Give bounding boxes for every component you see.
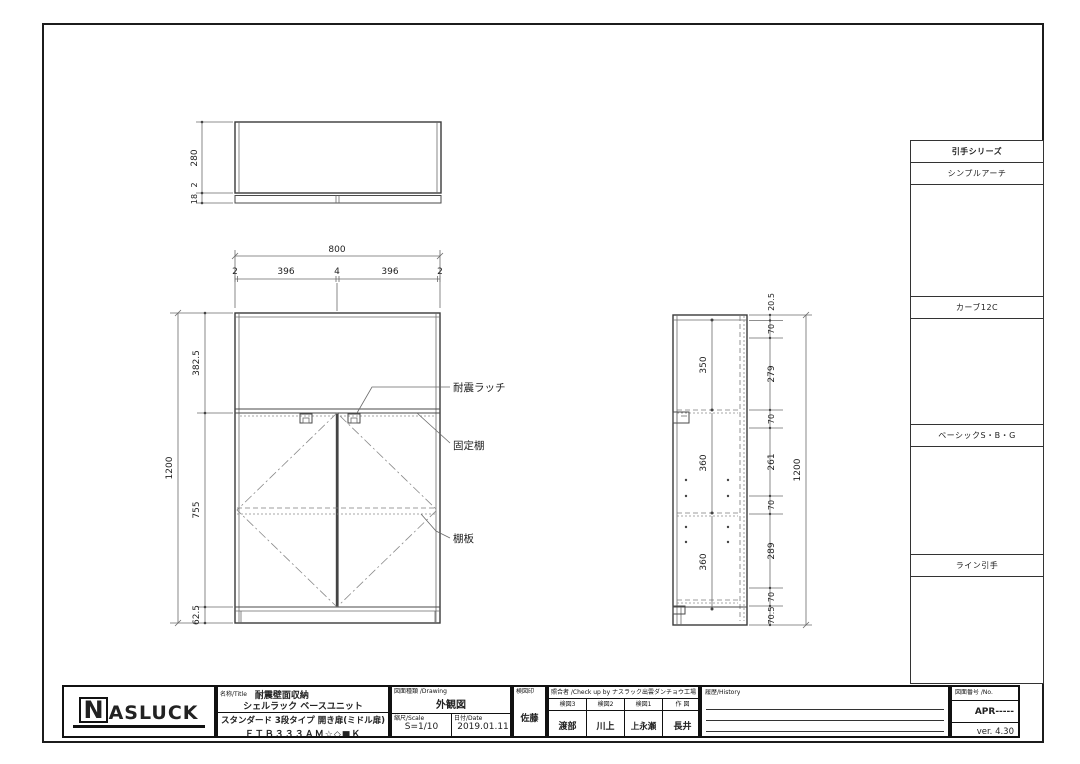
top-view: 280 2 18 bbox=[190, 121, 441, 205]
dim-side-360a: 360 bbox=[699, 454, 709, 471]
stamp-label: 検図印 bbox=[516, 688, 534, 695]
history-label: 履歴/History bbox=[705, 689, 740, 696]
dim-side-705: 70.5 bbox=[767, 607, 776, 625]
dim-front-800: 800 bbox=[328, 245, 345, 255]
check2-label: 検図2 bbox=[587, 699, 625, 711]
product-name-2: シェルラック ベースユニット bbox=[218, 699, 388, 712]
stamp-name: 佐藤 bbox=[514, 695, 545, 738]
date-value: 2019.01.11 bbox=[452, 722, 512, 732]
handle-section-title-line: ライン引手 bbox=[910, 554, 1044, 577]
dim-side-205: 20.5 bbox=[767, 293, 776, 311]
date-label: 日付/Date bbox=[454, 715, 512, 722]
dim-side-279: 279 bbox=[767, 365, 777, 382]
drawing-type-value: 外観図 bbox=[392, 694, 510, 713]
check1-name: 上永瀬 bbox=[625, 711, 663, 738]
handle-section-body-line bbox=[910, 576, 1044, 684]
version-value: ver. 4.30 bbox=[952, 722, 1018, 738]
dim-side-1200: 1200 bbox=[793, 458, 803, 481]
logo-letter-n: N bbox=[79, 697, 107, 723]
handle-section-title-basic-sbg: ベーシックS・B・G bbox=[910, 424, 1044, 447]
label-fixed-shelf: 固定棚 bbox=[453, 439, 485, 452]
scale-value: S=1/10 bbox=[392, 722, 451, 732]
dim-side-289: 289 bbox=[767, 542, 777, 559]
handle-section-title-simple-arch: シンプルアーチ bbox=[910, 162, 1044, 185]
dim-front-382: 382.5 bbox=[192, 350, 202, 376]
dim-front-1200: 1200 bbox=[165, 456, 175, 479]
dim-front-2a: 2 bbox=[232, 267, 238, 277]
dim-side-70a: 70 bbox=[767, 324, 776, 334]
label-shelf-board: 棚板 bbox=[453, 532, 474, 545]
company-logo: N ASLUCK bbox=[62, 685, 216, 738]
hinge-icon bbox=[673, 412, 689, 423]
product-model-code: ＦＴＢ３３３ＡＭ☆◇■Ｋ bbox=[218, 726, 388, 738]
check1-label: 検図1 bbox=[625, 699, 663, 711]
drawing-sheet: 280 2 18 bbox=[0, 0, 1080, 764]
dim-front-62: 62.5 bbox=[192, 605, 202, 625]
dim-side-350: 350 bbox=[699, 356, 709, 373]
check-stamp-box: 検図印 佐藤 bbox=[512, 685, 547, 738]
draft-label: 作 図 bbox=[663, 699, 700, 711]
side-view: 350 360 360 20.5 70 279 bbox=[673, 293, 812, 628]
check3-name: 渡部 bbox=[549, 711, 587, 738]
history-row-line bbox=[706, 720, 944, 721]
dim-side-70b: 70 bbox=[767, 414, 776, 424]
scale-label: 縮尺/Scale bbox=[394, 715, 451, 722]
dim-top-18: 18 bbox=[190, 194, 199, 204]
latch-icon bbox=[300, 414, 312, 423]
dim-side-261: 261 bbox=[767, 453, 777, 470]
handle-section-body-basic-sbg bbox=[910, 446, 1044, 555]
drawing-number-label: 図面番号 /No. bbox=[955, 689, 993, 696]
handle-section-body-curve12c bbox=[910, 318, 1044, 425]
dim-side-70c: 70 bbox=[767, 500, 776, 510]
dim-front-4: 4 bbox=[334, 267, 340, 277]
dim-front-2b: 2 bbox=[437, 267, 443, 277]
history-box: 履歴/History bbox=[700, 685, 950, 738]
dim-front-396b: 396 bbox=[381, 267, 398, 277]
name-label: 名称/Title bbox=[220, 691, 247, 698]
label-seismic-latch: 耐震ラッチ bbox=[453, 381, 506, 394]
title-name-box: 名称/Title 耐震壁面収納 シェルラック ベースユニット スタンダード 3段… bbox=[216, 685, 390, 738]
handle-section-title-curve12c: カーブ12C bbox=[910, 296, 1044, 319]
dim-side-360b: 360 bbox=[699, 553, 709, 570]
latch-icon bbox=[348, 414, 360, 423]
check-table: 照合者 /Check up by ナスラック出雲ダンチョウ工場 検図3 検図2 … bbox=[547, 685, 700, 738]
drawing-number-value: APR----- bbox=[952, 700, 1018, 722]
dim-side-70d: 70 bbox=[767, 592, 776, 602]
history-row-line bbox=[706, 731, 944, 732]
dim-front-396a: 396 bbox=[277, 267, 294, 277]
check-table-header: 照合者 /Check up by ナスラック出雲ダンチョウ工場 bbox=[549, 687, 698, 699]
dim-front-755: 755 bbox=[192, 501, 202, 518]
handle-series-header: 引手シリーズ bbox=[910, 140, 1044, 163]
drawing-type-box: 図面種類 /Drawing 外観図 縮尺/Scale S=1/10 日付/Dat… bbox=[390, 685, 512, 738]
check3-label: 検図3 bbox=[549, 699, 587, 711]
logo-text: ASLUCK bbox=[109, 703, 199, 723]
dim-top-280: 280 bbox=[190, 149, 200, 166]
handle-section-body-simple-arch bbox=[910, 184, 1044, 297]
history-row-line bbox=[706, 709, 944, 710]
front-view: 800 2 396 4 396 2 1200 382.5 755 62.5 bbox=[165, 245, 506, 626]
check2-name: 川上 bbox=[587, 711, 625, 738]
draft-name: 長井 bbox=[663, 711, 700, 738]
dim-top-2: 2 bbox=[190, 182, 199, 187]
drawing-number-box: 図面番号 /No. APR----- ver. 4.30 bbox=[950, 685, 1020, 738]
product-name-3: スタンダード 3段タイプ 開き扉(ミドル扉) bbox=[218, 712, 388, 726]
